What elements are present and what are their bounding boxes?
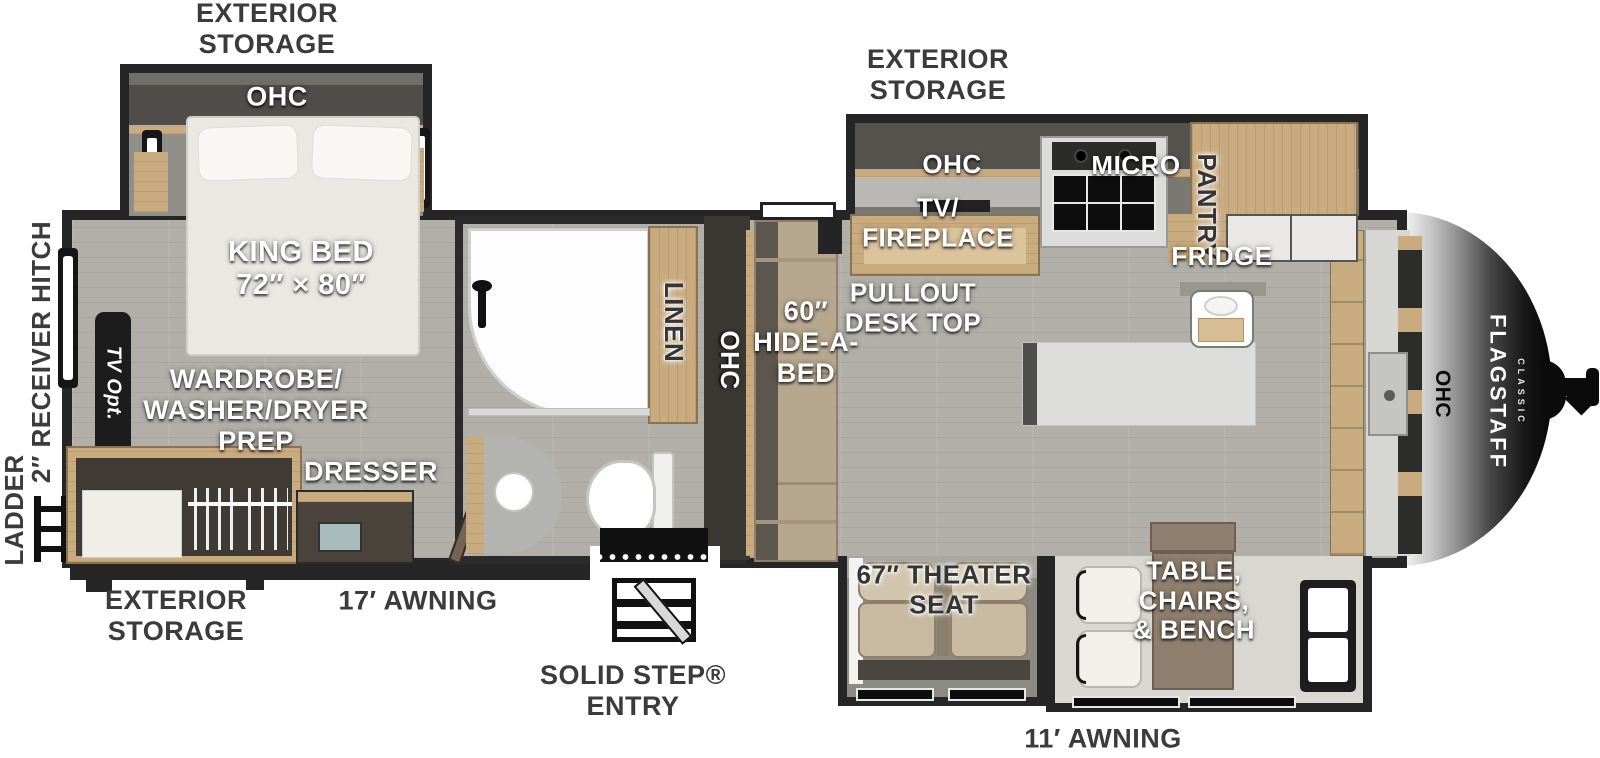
label-bedroom-ohc: OHC bbox=[246, 82, 308, 113]
label-king-bed: KING BED 72″ × 80″ bbox=[228, 236, 374, 302]
theater-window bbox=[948, 688, 1026, 701]
hangers-icon bbox=[248, 488, 288, 550]
front-tv bbox=[1368, 352, 1408, 436]
hall-ohc-shelf bbox=[746, 230, 753, 556]
entry-step-tray bbox=[600, 528, 708, 562]
label-kitchen-ohc: OHC bbox=[922, 150, 981, 180]
floorplan-canvas: EXTERIOR STORAGE EXTERIOR STORAGE EXTERI… bbox=[0, 0, 1600, 758]
label-awning-11: 11′ AWNING bbox=[1024, 724, 1182, 755]
kitchen-island bbox=[1022, 342, 1256, 426]
label-fridge: FRIDGE bbox=[1171, 242, 1272, 272]
label-table-chairs: TABLE, CHAIRS, & BENCH bbox=[1133, 557, 1255, 646]
dinette-window bbox=[1300, 580, 1356, 692]
label-micro: MICRO bbox=[1091, 151, 1180, 181]
label-pullout-desk: PULLOUT DESK TOP bbox=[845, 278, 981, 337]
stove-grate-icon bbox=[1052, 174, 1156, 232]
label-exterior-storage-rear: EXTERIOR STORAGE bbox=[196, 0, 338, 60]
front-cabinets bbox=[1330, 230, 1364, 556]
label-hide-a-bed: 60″ HIDE-A- BED bbox=[753, 296, 859, 388]
theater-window bbox=[856, 688, 934, 701]
side-table bbox=[818, 220, 842, 254]
label-tv-opt: TV Opt. bbox=[102, 346, 125, 421]
label-hall-ohc: OHC bbox=[714, 330, 744, 389]
bath-sink bbox=[494, 472, 534, 512]
label-wardrobe: WARDROBE/ WASHER/DRYER PREP bbox=[143, 364, 369, 456]
label-front-ohc: OHC bbox=[1430, 370, 1454, 418]
label-receiver-hitch: 2″ RECEIVER HITCH bbox=[27, 221, 57, 483]
label-theater-seat: 67″ THEATER SEAT bbox=[857, 560, 1032, 619]
nightstand bbox=[134, 152, 168, 212]
label-dresser: DRESSER bbox=[304, 457, 438, 488]
brand-series: CLASSIC bbox=[1516, 358, 1526, 426]
shower-head-icon bbox=[478, 288, 486, 328]
window-above-sofa bbox=[760, 202, 836, 220]
label-solid-step-entry: SOLID STEP® ENTRY bbox=[540, 660, 726, 722]
rear-window-glass bbox=[63, 256, 73, 380]
hide-a-bed-sofa bbox=[754, 220, 838, 562]
label-tv-fireplace: TV/ FIREPLACE bbox=[862, 193, 1014, 252]
pillow bbox=[197, 124, 299, 181]
dinette-floor-window bbox=[1188, 696, 1296, 708]
toilet-bowl bbox=[586, 460, 656, 538]
wardrobe-cabinet bbox=[66, 446, 302, 564]
label-awning-17: 17′ AWNING bbox=[339, 586, 498, 617]
label-linen: LINEN bbox=[658, 282, 688, 363]
hangers-icon bbox=[194, 488, 238, 550]
dinette-bench bbox=[1150, 522, 1236, 552]
label-exterior-storage-bottom: EXTERIOR STORAGE bbox=[105, 585, 247, 647]
pillow bbox=[311, 124, 413, 181]
brand-logo: FLAGSTAFF bbox=[1485, 314, 1510, 470]
stabilizer-foot bbox=[246, 580, 264, 590]
dinette-floor-window bbox=[1072, 696, 1180, 708]
label-exterior-storage-kitchen: EXTERIOR STORAGE bbox=[867, 44, 1009, 106]
island-sink bbox=[1190, 290, 1254, 348]
solid-steps-icon bbox=[612, 578, 696, 642]
dresser bbox=[296, 490, 414, 564]
shower-glass bbox=[468, 408, 650, 416]
